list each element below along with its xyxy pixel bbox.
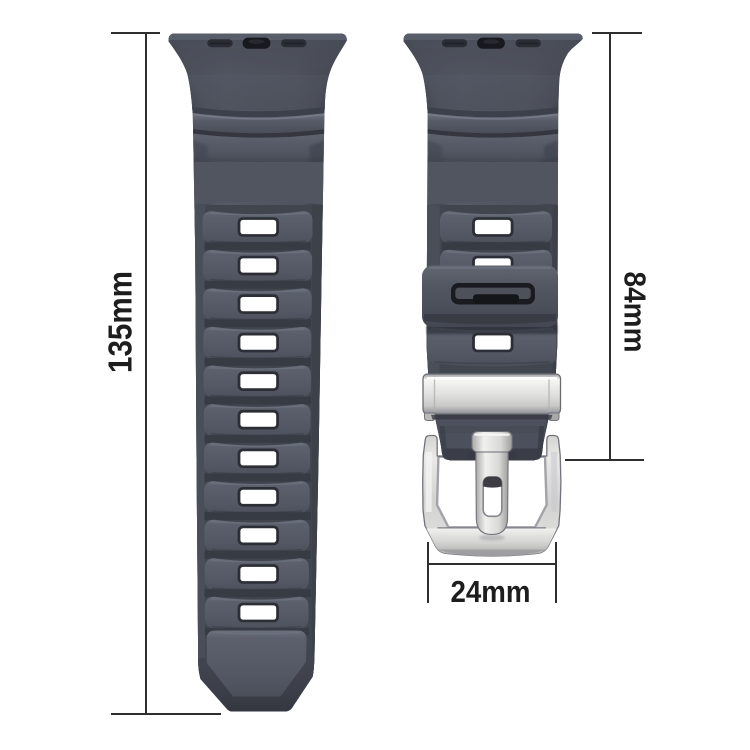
svg-text:24mm: 24mm [451,574,531,609]
svg-text:84mm: 84mm [618,272,653,353]
svg-text:135mm: 135mm [102,271,139,373]
